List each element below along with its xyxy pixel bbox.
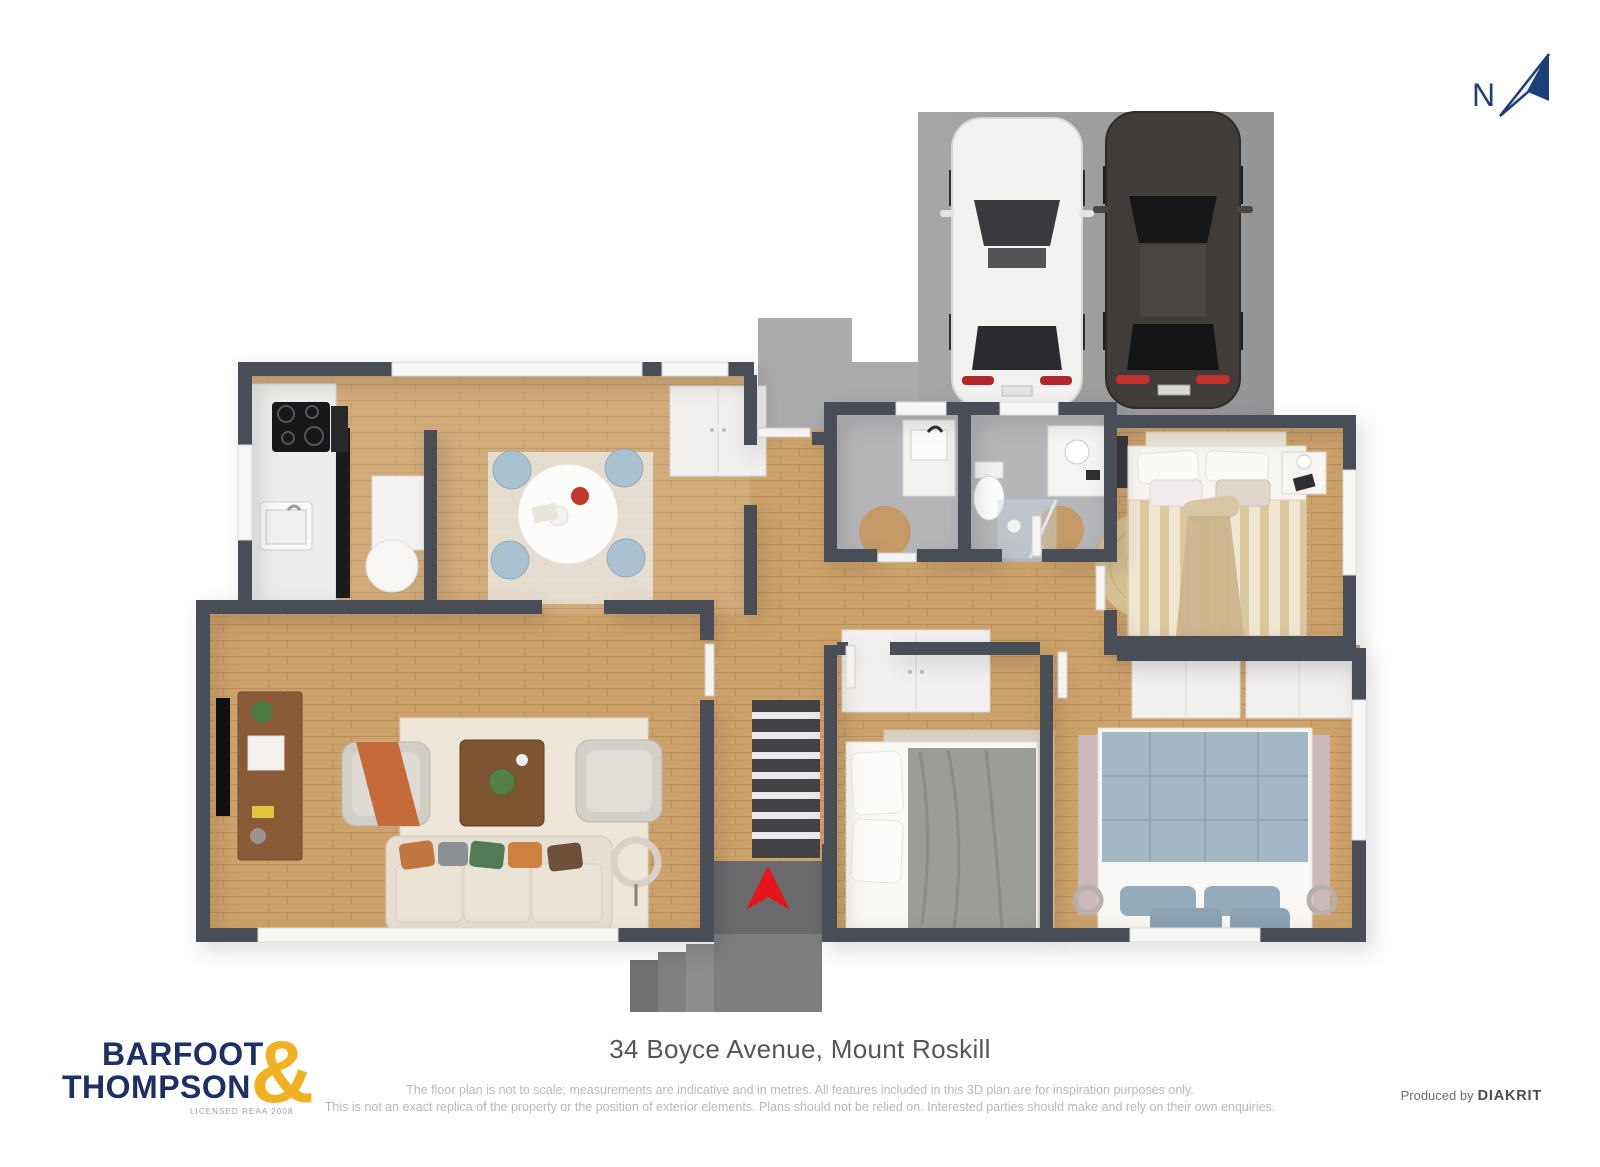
pillow: [1137, 450, 1199, 484]
sofa: [386, 836, 612, 932]
armchair: [342, 742, 430, 826]
credit-brand: DIAKRIT: [1478, 1088, 1542, 1104]
pillow: [1205, 450, 1268, 483]
entry-steps: [630, 944, 714, 1012]
taillight: [1040, 376, 1072, 385]
front-door: [758, 428, 810, 437]
headboard: [1146, 432, 1286, 446]
disclaimer: The floor plan is not to scale; measurem…: [0, 1082, 1600, 1116]
door: [705, 644, 714, 696]
window: [392, 362, 642, 376]
plant: [489, 769, 515, 795]
cooktop: [272, 402, 330, 452]
door: [1058, 652, 1067, 698]
vanity: [1048, 426, 1106, 496]
coffee-table: [460, 740, 544, 826]
window: [258, 928, 618, 942]
property-address: 34 Boyce Avenue, Mount Roskill: [0, 1034, 1600, 1065]
door: [878, 553, 916, 562]
dining-chair: [605, 449, 643, 487]
disclaimer-line-1: The floor plan is not to scale; measurem…: [0, 1082, 1600, 1099]
north-indicator: N: [1472, 54, 1549, 116]
nightstand: [1282, 452, 1326, 494]
kitchen-table: [372, 476, 424, 550]
door: [1096, 566, 1105, 610]
oven: [331, 406, 348, 452]
dark-grey-car: [1093, 112, 1253, 408]
white-car: [940, 118, 1094, 408]
window: [238, 445, 252, 540]
bed-3: [1098, 728, 1312, 936]
flower-centerpiece: [571, 487, 589, 505]
taillight: [962, 376, 994, 385]
windshield: [974, 200, 1060, 246]
window: [896, 402, 946, 415]
north-label: N: [1472, 77, 1495, 113]
disclaimer-line-2: This is not an exact replica of the prop…: [0, 1099, 1600, 1116]
windshield: [1129, 196, 1217, 243]
plant: [251, 701, 273, 723]
pillow: [508, 842, 542, 868]
kitchen-stool: [366, 540, 418, 592]
pillow: [850, 751, 903, 816]
floor-plan-rendering: N: [0, 0, 1600, 1167]
window: [1343, 470, 1356, 575]
window: [1130, 928, 1260, 942]
taillight: [1116, 375, 1150, 384]
credit-prefix: Produced by: [1401, 1088, 1474, 1103]
producer-credit: Produced byDIAKRIT: [1401, 1088, 1542, 1104]
bedroom-1: [1095, 432, 1326, 636]
armchair: [576, 740, 662, 822]
door: [1032, 516, 1041, 556]
pillow: [547, 842, 584, 872]
hallway: [752, 700, 820, 858]
bed-2: [846, 742, 1038, 932]
window: [662, 362, 728, 376]
pillow: [850, 819, 903, 884]
dining-chair: [491, 541, 529, 579]
dining-chair: [607, 539, 645, 577]
tv: [216, 698, 230, 816]
window: [1352, 700, 1366, 840]
floor-plan-page: N & BARFOOT THOMPSON LICENSED REAA 2008 …: [0, 0, 1600, 1167]
door: [846, 646, 855, 688]
taillight: [1196, 375, 1230, 384]
dining-chair: [493, 451, 531, 489]
window: [1000, 402, 1058, 415]
pillow: [469, 840, 506, 869]
pillow: [398, 840, 435, 870]
pillow: [438, 842, 468, 866]
bed-1: [1128, 432, 1306, 636]
